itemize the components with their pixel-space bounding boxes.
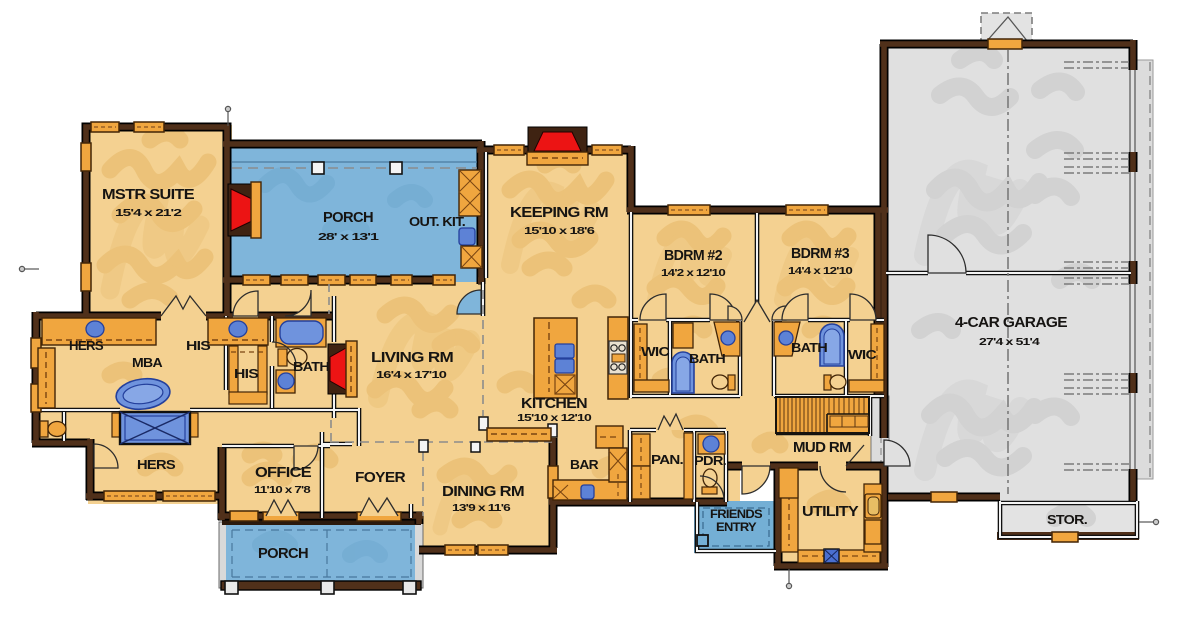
svg-text:MUD RM: MUD RM: [793, 440, 852, 456]
svg-text:BATH: BATH: [293, 360, 330, 374]
svg-text:HERS: HERS: [137, 458, 175, 472]
svg-text:OFFICE: OFFICE: [255, 465, 312, 481]
svg-text:PORCH: PORCH: [258, 546, 308, 562]
svg-text:15'10 x 12'10: 15'10 x 12'10: [517, 412, 592, 424]
svg-text:WIC: WIC: [848, 348, 877, 362]
svg-text:15'10 x 18'6: 15'10 x 18'6: [524, 225, 595, 237]
svg-text:MSTR SUITE: MSTR SUITE: [102, 187, 195, 203]
svg-text:LIVING RM: LIVING RM: [371, 350, 454, 366]
svg-text:PORCH: PORCH: [323, 210, 373, 226]
svg-text:OUT. KIT.: OUT. KIT.: [409, 215, 465, 229]
svg-text:HERS: HERS: [69, 339, 103, 353]
svg-text:BDRM #2: BDRM #2: [664, 248, 723, 264]
svg-text:16'4 x 17'10: 16'4 x 17'10: [376, 369, 447, 381]
svg-text:DINING RM: DINING RM: [442, 484, 525, 500]
svg-text:KITCHEN: KITCHEN: [521, 396, 587, 412]
svg-text:PDR.: PDR.: [694, 454, 726, 468]
svg-text:MBA: MBA: [132, 356, 163, 370]
svg-text:BATH: BATH: [689, 352, 726, 366]
svg-text:KEEPING RM: KEEPING RM: [510, 205, 609, 221]
svg-text:STOR.: STOR.: [1047, 513, 1087, 527]
svg-text:UTILITY: UTILITY: [802, 504, 859, 520]
svg-text:WIC: WIC: [641, 345, 670, 359]
svg-text:27'4 x 51'4: 27'4 x 51'4: [979, 336, 1040, 348]
svg-text:4-CAR GARAGE: 4-CAR GARAGE: [955, 315, 1068, 331]
svg-text:HIS: HIS: [234, 367, 258, 381]
svg-text:HIS: HIS: [186, 339, 210, 353]
svg-text:14'2 x 12'10: 14'2 x 12'10: [661, 267, 726, 279]
svg-text:28' x 13'1: 28' x 13'1: [318, 231, 379, 243]
svg-text:BDRM #3: BDRM #3: [791, 246, 850, 262]
svg-text:13'9 x 11'6: 13'9 x 11'6: [452, 502, 511, 514]
svg-text:15'4 x 21'2: 15'4 x 21'2: [115, 207, 182, 219]
svg-text:BATH: BATH: [791, 341, 828, 355]
svg-text:FRIENDS: FRIENDS: [710, 509, 763, 521]
svg-text:BAR: BAR: [570, 458, 599, 472]
svg-text:14'4 x 12'10: 14'4 x 12'10: [788, 265, 853, 277]
svg-text:FOYER: FOYER: [355, 470, 406, 486]
svg-text:11'10 x 7'8: 11'10 x 7'8: [254, 484, 311, 496]
svg-text:ENTRY: ENTRY: [716, 522, 757, 534]
svg-text:PAN.: PAN.: [651, 453, 683, 467]
